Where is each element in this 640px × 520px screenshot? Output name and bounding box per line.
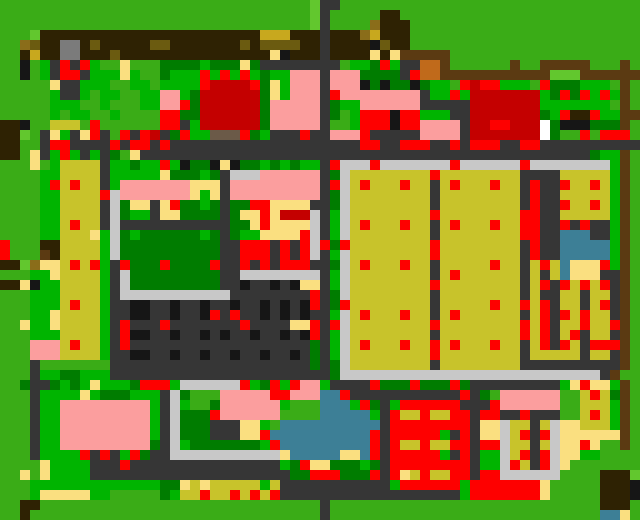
game-map-canvas[interactable]: [0, 0, 640, 520]
map-viewport: [0, 0, 640, 520]
